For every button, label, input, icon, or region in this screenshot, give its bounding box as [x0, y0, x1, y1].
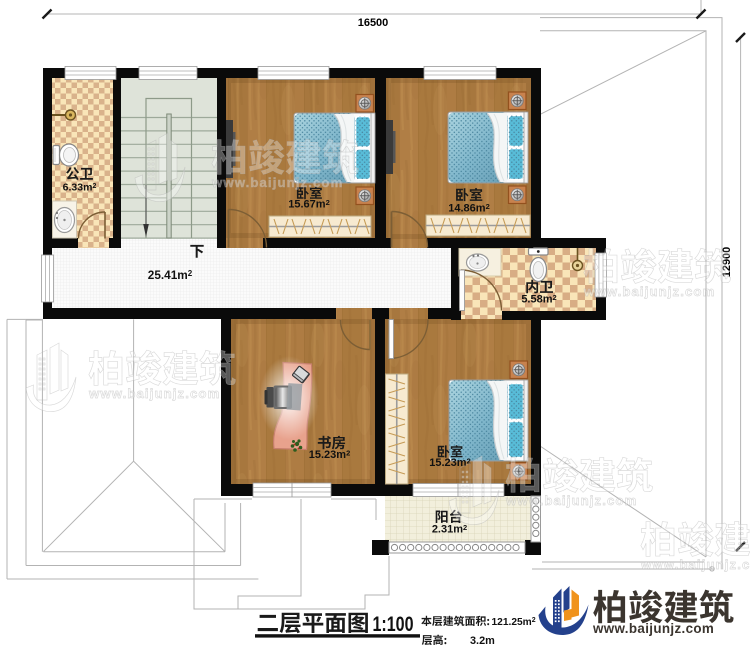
- svg-text:14.86m2: 14.86m2: [448, 202, 489, 215]
- svg-text:www.baijunjz.com: www.baijunjz.com: [592, 621, 714, 636]
- svg-text:15.67m2: 15.67m2: [288, 198, 329, 211]
- svg-text:25.41m2: 25.41m2: [148, 268, 193, 282]
- svg-text:5.58m2: 5.58m2: [521, 293, 556, 306]
- svg-text:1:100: 1:100: [373, 613, 414, 636]
- svg-text:www.baijunjz.com: www.baijunjz.com: [583, 284, 715, 299]
- svg-text:www.baijunjz.com: www.baijunjz.com: [211, 175, 343, 190]
- svg-text:2.31m2: 2.31m2: [432, 523, 467, 536]
- svg-text:www.baijunjz.com: www.baijunjz.com: [505, 493, 637, 508]
- svg-text:www.baijunjz.com: www.baijunjz.com: [88, 386, 220, 401]
- svg-text:6.33m2: 6.33m2: [63, 182, 97, 194]
- svg-text:15.23m2: 15.23m2: [429, 457, 470, 470]
- svg-text:121.25m2: 121.25m2: [492, 617, 536, 628]
- svg-text:3.2m: 3.2m: [470, 635, 495, 647]
- svg-text:15.23m2: 15.23m2: [309, 449, 350, 462]
- svg-text:www.baijunjz.com: www.baijunjz.com: [640, 557, 750, 572]
- svg-text:16500: 16500: [358, 17, 389, 29]
